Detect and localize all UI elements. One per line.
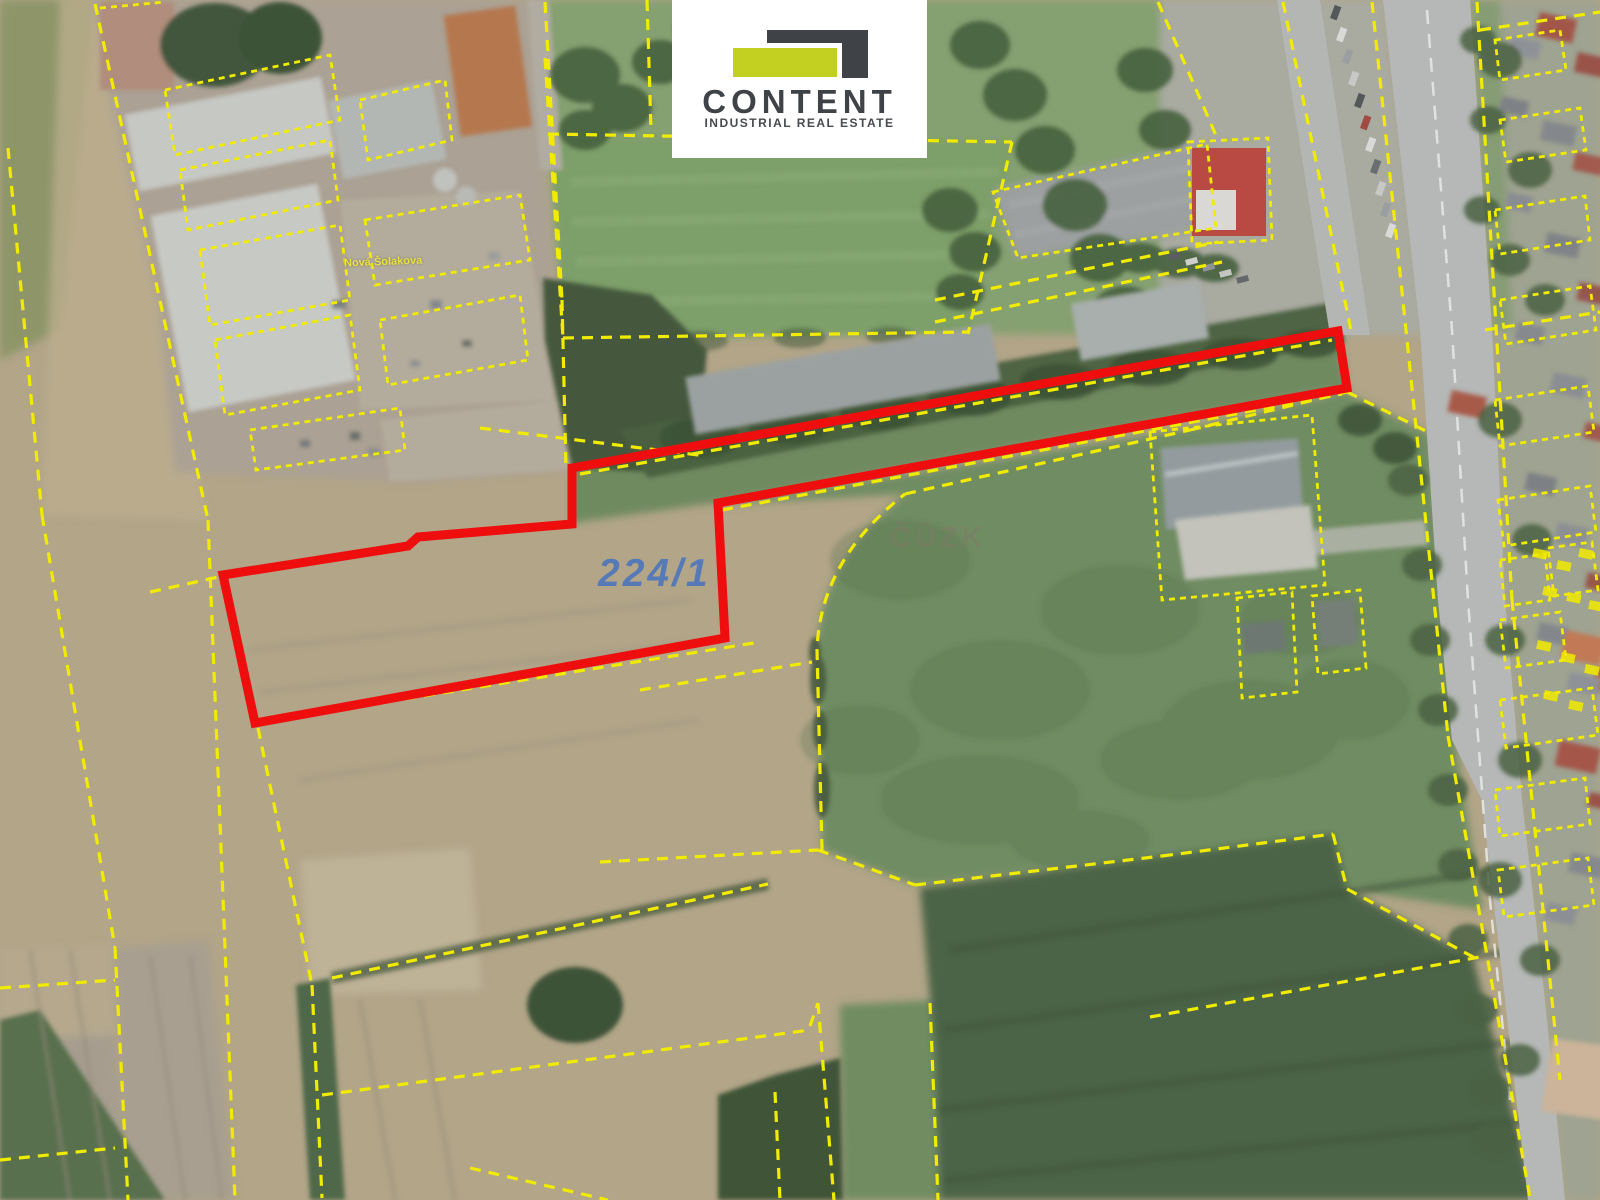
logo-mark-icon (672, 0, 927, 80)
aerial-cadastre-map: ČÚZK 224/1 Nová Šolakova CONTENT INDUSTR… (0, 0, 1600, 1200)
logo-dark-block (842, 42, 868, 78)
content-logo: CONTENT INDUSTRIAL REAL ESTATE (672, 0, 927, 158)
parcel-number-label: 224/1 (598, 552, 711, 596)
logo-lime-bar (733, 48, 837, 77)
logo-tagline: INDUSTRIAL REAL ESTATE (672, 116, 927, 130)
cuzk-watermark: ČÚZK (890, 522, 987, 555)
aerial-photo-base (0, 0, 1600, 1200)
